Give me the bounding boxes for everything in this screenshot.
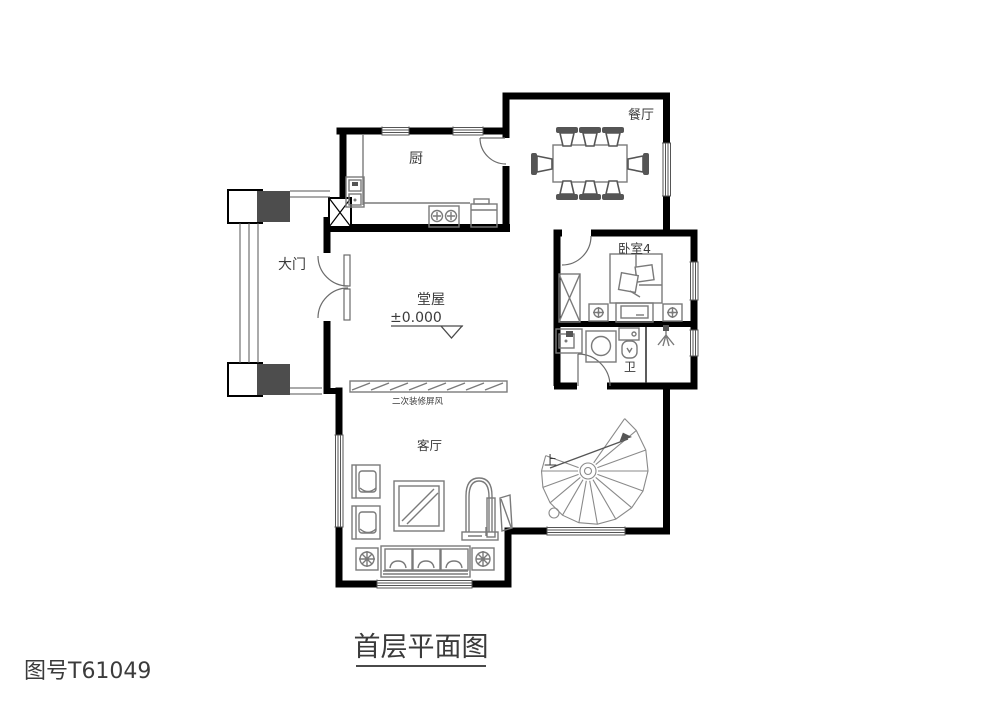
dining-table — [553, 145, 627, 182]
label-dining: 餐厅 — [628, 107, 654, 123]
label-kitchen: 厨 — [409, 151, 423, 167]
kitchen-door — [480, 138, 506, 164]
plant-stand-right — [472, 548, 494, 570]
stove — [429, 206, 459, 227]
bedroom-furniture — [559, 254, 682, 322]
nightstand-right — [663, 304, 682, 321]
column-block — [329, 198, 351, 227]
counter — [363, 135, 470, 205]
dining-window — [662, 143, 671, 196]
sheet-text: 首层平面图 图号T61049 — [24, 632, 489, 684]
bathroom-door — [578, 354, 610, 386]
label-entrance: 大门 — [278, 257, 306, 273]
label-elevation: ±0.000 — [390, 310, 442, 326]
sheet-title: 首层平面图 — [354, 632, 489, 663]
nightstand-left — [589, 304, 608, 321]
label-bedroom4: 卧室4 — [618, 241, 651, 256]
living-furniture — [352, 465, 512, 577]
label-living: 客厅 — [417, 438, 442, 453]
floor-plan-page: 厨 餐厅 大门 堂屋 ±0.000 二次装修屏风 卧室4 卫 客厅 上 首层平面… — [0, 0, 1000, 707]
sofa — [381, 546, 470, 577]
wardrobe — [559, 274, 580, 322]
label-screen-note: 二次装修屏风 — [392, 396, 444, 407]
kitchen-window-1 — [382, 127, 409, 136]
plant-stand-left — [356, 548, 378, 570]
floor-plan-drawing: 厨 餐厅 大门 堂屋 ±0.000 二次装修屏风 卧室4 卫 客厅 上 首层平面… — [0, 0, 1000, 707]
bathroom-fixtures — [556, 325, 674, 383]
label-bathroom: 卫 — [624, 360, 636, 374]
toilet — [619, 328, 639, 358]
windows — [335, 127, 699, 589]
decor-screen — [350, 381, 507, 392]
washing-machine — [586, 331, 616, 362]
bed — [610, 254, 662, 303]
kitchen-sink — [346, 177, 364, 207]
label-hall: 堂屋 — [417, 292, 445, 308]
entrance-double-door — [318, 255, 350, 320]
kitchen-fixtures — [346, 135, 497, 227]
porch-pillar-bottom — [228, 363, 262, 396]
living-left-window — [335, 435, 344, 527]
fridge — [471, 199, 497, 227]
shower-head-icon — [658, 325, 674, 346]
elevation-marker — [391, 326, 463, 338]
armchair-1 — [352, 465, 380, 498]
stair-up-arrow — [550, 433, 632, 468]
stair-window — [547, 527, 625, 536]
coffee-table — [394, 481, 444, 531]
dining-set — [531, 127, 649, 200]
side-panel — [500, 495, 512, 531]
spiral-staircase — [542, 419, 649, 525]
porch-pillar-top — [228, 190, 262, 223]
living-bottom-window — [377, 580, 472, 589]
drawing-number: 图号T61049 — [24, 659, 151, 684]
porch-pillar-bottom-shadow — [257, 364, 290, 395]
porch-edge-lines — [240, 223, 258, 363]
porch — [228, 190, 330, 396]
porch-pillar-top-shadow — [257, 191, 290, 222]
dresser — [616, 303, 653, 322]
label-stairs-up: 上 — [544, 454, 557, 469]
bedroom-door — [562, 236, 591, 265]
armchair-2 — [352, 506, 380, 539]
bathroom-window — [690, 330, 699, 356]
kitchen-window-2 — [453, 127, 483, 136]
arch-cabinet — [462, 478, 498, 540]
bedroom-window — [690, 262, 699, 300]
